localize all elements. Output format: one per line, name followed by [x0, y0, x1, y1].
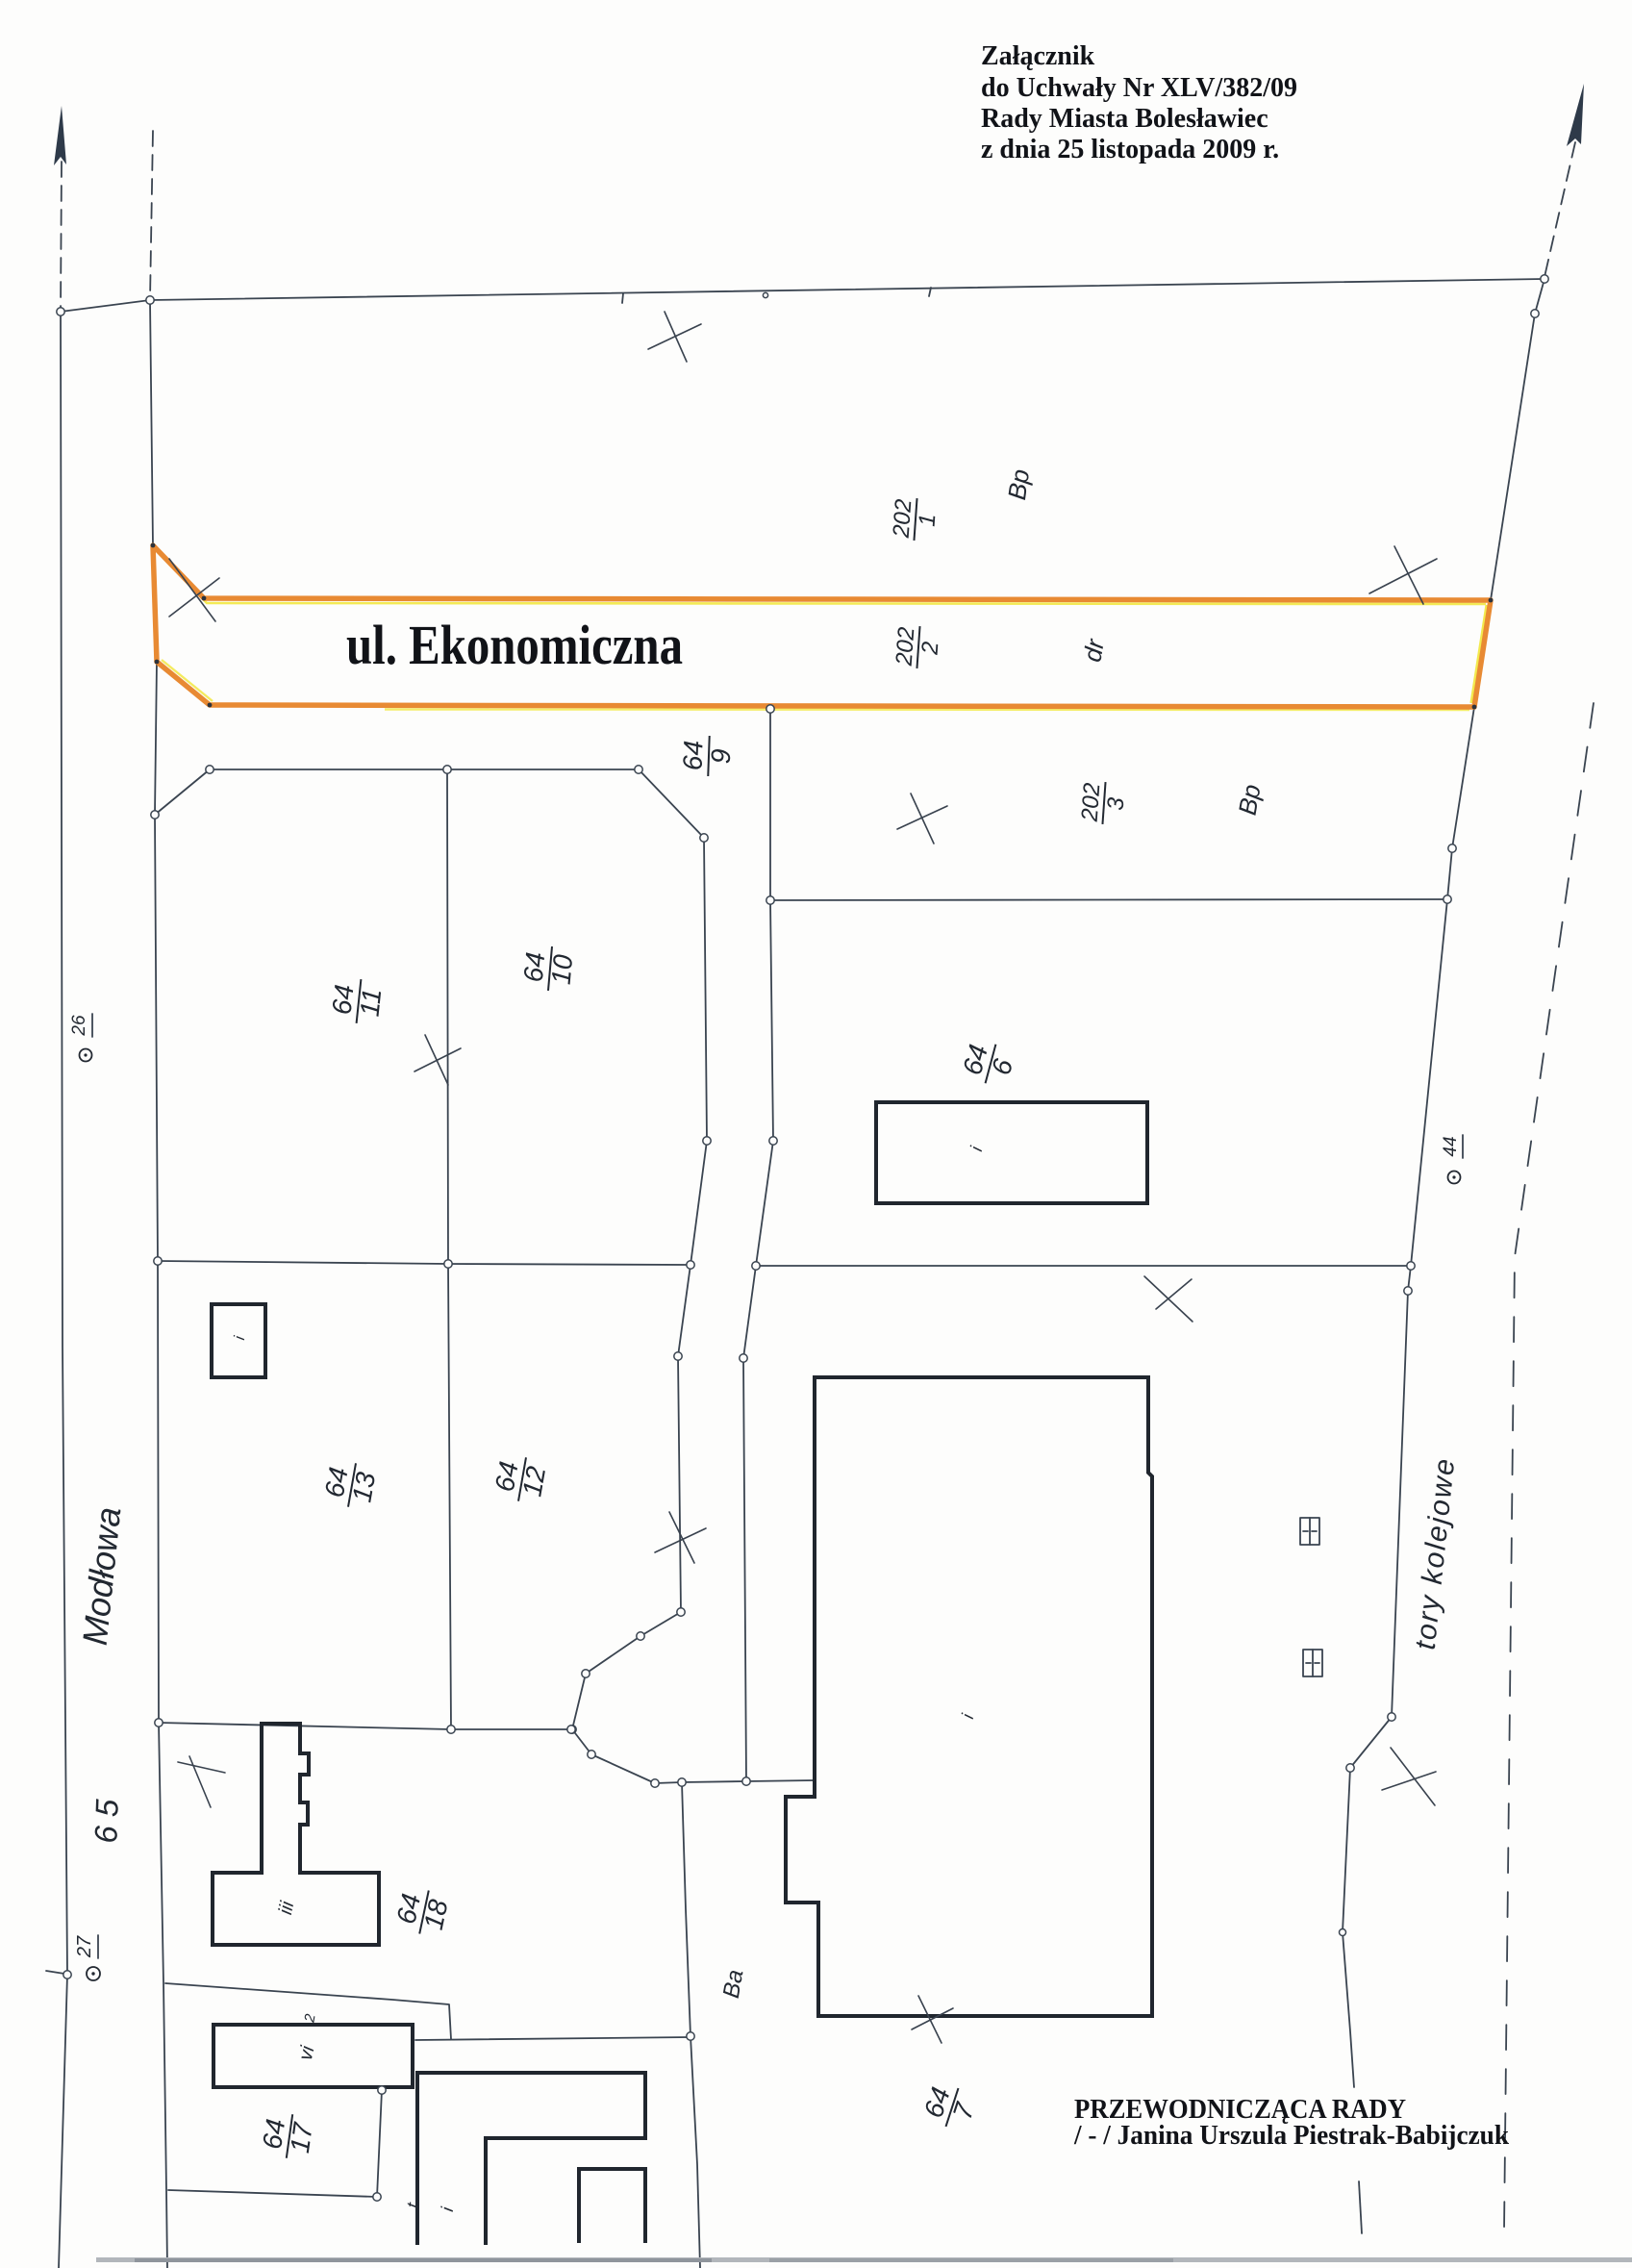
svg-text:9: 9: [706, 748, 737, 765]
svg-text:Rady Miasta Bolesławiec: Rady Miasta Bolesławiec: [981, 104, 1268, 134]
svg-text:202: 202: [891, 626, 920, 668]
svg-text:z dnia 25 listopada 2009 r.: z dnia 25 listopada 2009 r.: [981, 135, 1279, 164]
svg-text:26: 26: [69, 1015, 89, 1037]
svg-text:64: 64: [677, 740, 708, 770]
svg-text:202: 202: [1077, 782, 1106, 823]
svg-text:3: 3: [1103, 796, 1130, 812]
svg-text:do Uchwały Nr XLV/382/09: do Uchwały Nr XLV/382/09: [981, 73, 1297, 103]
svg-text:Załącznik: Załącznik: [981, 41, 1095, 71]
svg-text:Bp: Bp: [1233, 782, 1267, 818]
svg-text:Bp: Bp: [1002, 467, 1035, 502]
svg-text:13: 13: [346, 1470, 381, 1504]
svg-text:10: 10: [546, 953, 579, 986]
svg-text:Ba: Ba: [718, 1968, 749, 2001]
svg-text:17: 17: [285, 2120, 318, 2155]
svg-text:2: 2: [916, 641, 943, 656]
svg-text:44: 44: [1441, 1136, 1461, 1156]
svg-text:ul. Ekonomiczna: ul. Ekonomiczna: [346, 614, 683, 676]
svg-text:1: 1: [915, 513, 942, 527]
svg-text:12: 12: [516, 1464, 551, 1499]
svg-text:/ - / Janina Urszula Piestrak-: / - / Janina Urszula Piestrak-Babijczuk: [1073, 2121, 1509, 2151]
svg-text:27: 27: [74, 1935, 95, 1958]
svg-text:202: 202: [889, 498, 917, 540]
svg-text:6 5: 6 5: [88, 1798, 125, 1844]
svg-text:11: 11: [354, 987, 387, 1018]
